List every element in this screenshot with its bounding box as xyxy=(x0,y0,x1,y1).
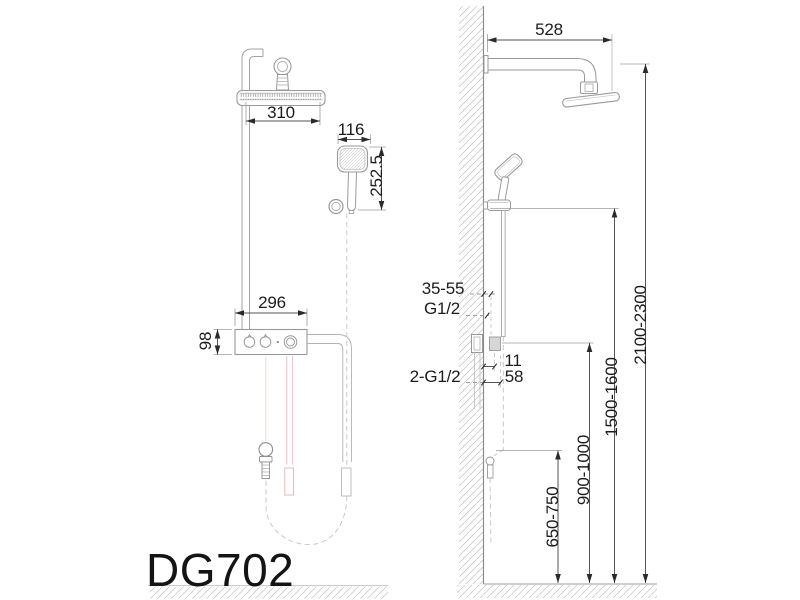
valve-knob-right xyxy=(260,337,271,348)
hose-sleeve-right xyxy=(342,468,352,496)
hand-shower-side xyxy=(484,152,524,336)
thread-size-bottom-label: 2-G1/2 xyxy=(410,367,461,387)
overhead-ball-joint-front xyxy=(274,58,291,90)
overhead-shower-head-side xyxy=(562,92,620,107)
dim-mixer-height-range-label: 900-1000 xyxy=(574,435,594,505)
hanging-hose-side xyxy=(502,211,506,337)
dim-overhead-height-label: 2100-2300 xyxy=(631,285,651,365)
supply-drop-lines xyxy=(266,356,294,495)
dim-mixer-height-label: 98 xyxy=(196,332,216,351)
dim-98-lines xyxy=(214,330,233,355)
hand-shower-front xyxy=(329,146,368,214)
hand-shower-holder xyxy=(488,200,511,211)
valve-outlet-pipe-front xyxy=(307,335,352,463)
ground-side xyxy=(457,584,657,598)
hand-shower-hose-front xyxy=(266,214,347,545)
model-number-label: DG702 xyxy=(146,543,294,597)
dim-hand-shower-height-label: 1500-1600 xyxy=(602,357,622,437)
dim-mixer-width-label: 296 xyxy=(258,293,286,313)
valve-knob-left xyxy=(244,337,255,348)
hose-connector-front xyxy=(259,443,273,479)
dim-hose-connector-height-label: 650-750 xyxy=(543,487,563,548)
dim-rough-in-depth-label: 35-55 xyxy=(422,279,464,299)
height-dimension-lines xyxy=(490,64,650,583)
thread-size-top-label: G1/2 xyxy=(424,299,460,319)
technical-drawing-page: 310 116 252.5 296 98 528 35-55 G1/2 2-G1… xyxy=(0,0,800,600)
dim-hand-shower-length-label: 252.5 xyxy=(367,155,387,197)
dim-overhead-width-label: 310 xyxy=(267,103,295,123)
dim-wall-offset-large-label: 58 xyxy=(505,367,524,387)
dim-arm-reach-label: 528 xyxy=(535,20,563,40)
mixer-valve-front xyxy=(235,330,307,355)
hose-ring-holder xyxy=(329,200,343,214)
technical-drawing-svg xyxy=(0,0,800,600)
shower-arm-side xyxy=(484,56,598,94)
dim-hand-shower-width-label: 116 xyxy=(338,120,365,140)
